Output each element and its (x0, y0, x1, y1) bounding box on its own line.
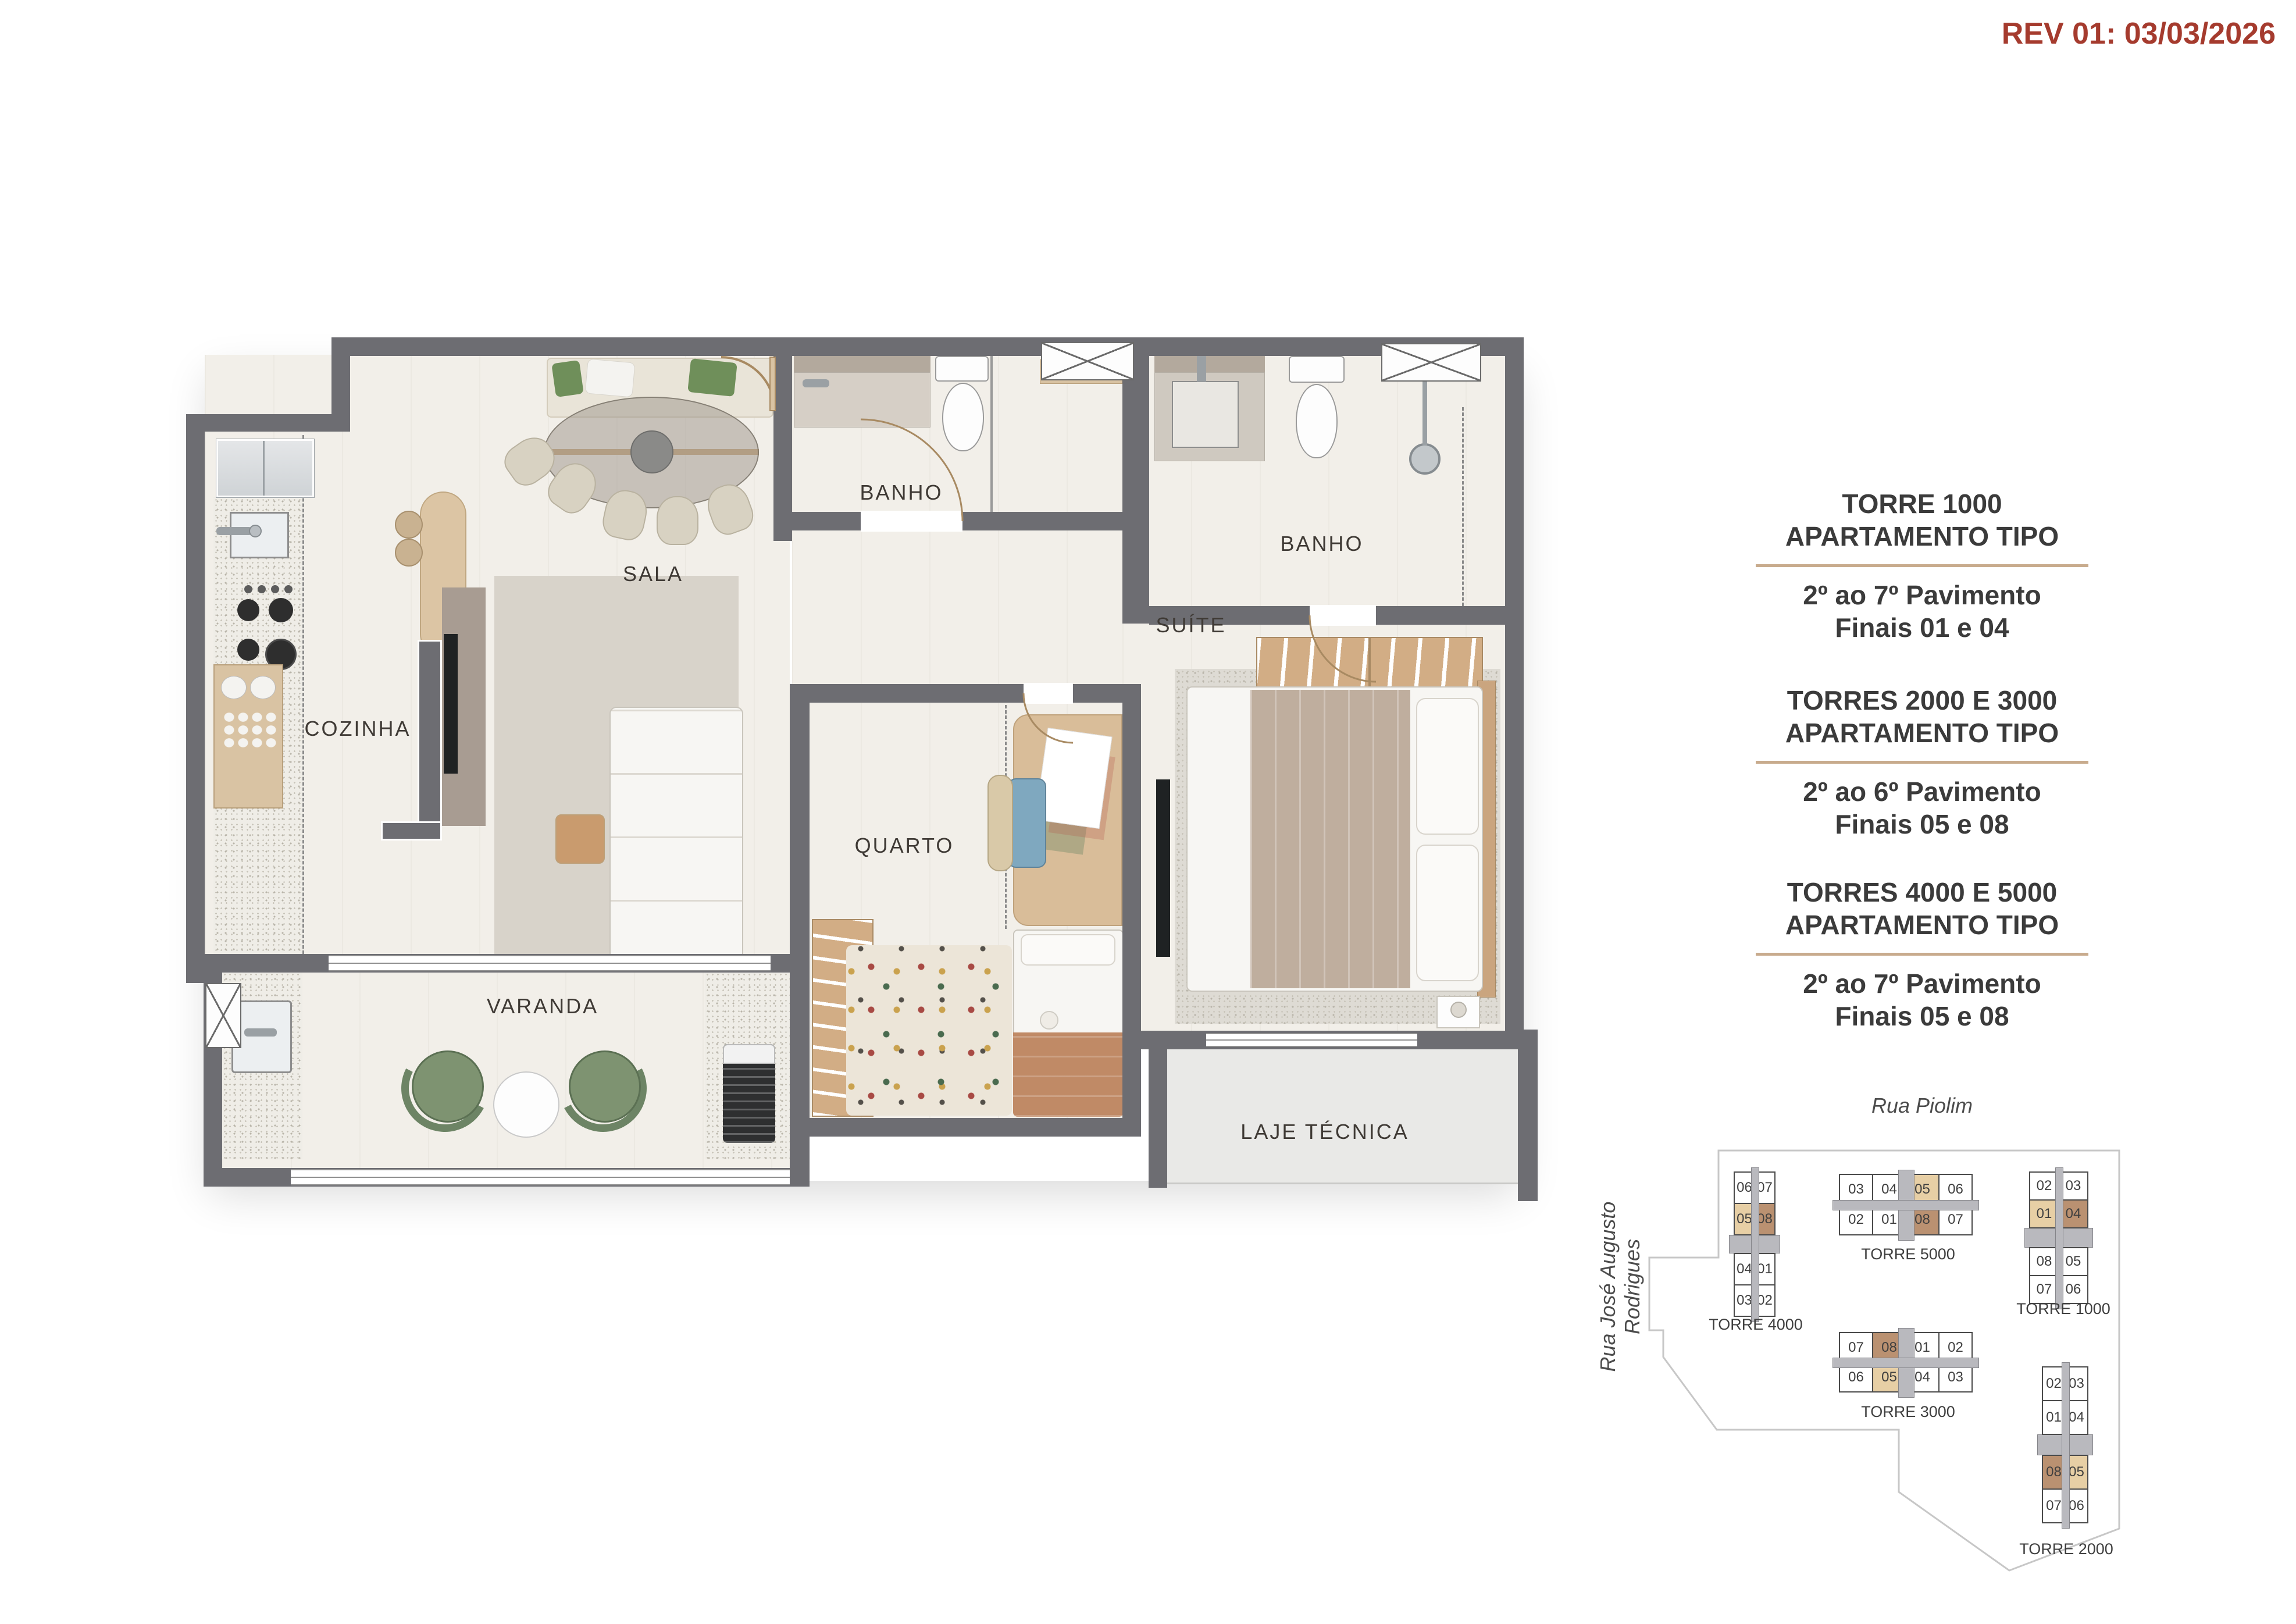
street-label-rua-jose-augusto-rodrigues: Rua José Augusto Rodrigues (1596, 1153, 1645, 1420)
tower-label-torre-5000: TORRE 5000 (1832, 1245, 1984, 1263)
tower-corridor (1832, 1358, 1979, 1368)
info-line1: 2º ao 6º Pavimento (1733, 775, 2111, 808)
fridge-door-split (263, 441, 265, 496)
bedroom-pillow (1021, 934, 1115, 966)
tower-label-torre-4000: TORRE 4000 (1680, 1316, 1831, 1334)
info-title: TORRES 2000 E 3000 (1733, 684, 2111, 717)
info-block-torres-4000-5000: TORRES 4000 E 5000 APARTAMENTO TIPO 2º a… (1733, 876, 2111, 1032)
burner-2 (269, 598, 293, 622)
bar-stool-1 (395, 511, 423, 539)
bath2-toilet-tank (1289, 356, 1345, 383)
tower-label-torre-3000: TORRE 3000 (1832, 1403, 1984, 1421)
balcony-faucet (244, 1028, 277, 1037)
info-title: TORRE 1000 (1733, 487, 2111, 520)
balcony-chair-left (412, 1050, 484, 1123)
coffee-table (555, 814, 605, 864)
balcony-shaft (205, 983, 241, 1048)
balcony-sliding-door (329, 955, 771, 971)
bedroom-desk-artwork (1035, 728, 1112, 829)
divider-line (1756, 761, 2088, 764)
balcony-table (493, 1071, 559, 1138)
bath1-toilet-bowl (942, 383, 984, 451)
floor-laje-tecnica (1167, 1049, 1518, 1184)
dining-centerpiece (630, 430, 673, 473)
wall-left (186, 414, 205, 983)
info-line2: Finais 05 e 08 (1733, 1000, 2111, 1032)
bath1-shower-partition (990, 352, 993, 512)
room-label-sala: SALA (566, 562, 740, 586)
living-divider-wall-foot (381, 821, 442, 841)
room-label-banho1: BANHO (814, 480, 989, 505)
tower-label-torre-2000: TORRE 2000 (1991, 1540, 2142, 1558)
bedroom-polka-rug (846, 945, 1012, 1116)
cabinet-dots (222, 711, 277, 749)
tower-diagram-torre-5000: 0304050602010807 (1839, 1174, 1972, 1235)
page: REV 01: 03/03/2026 (0, 0, 2296, 1624)
info-block-torres-2000-3000: TORRES 2000 E 3000 APARTAMENTO TIPO 2º a… (1733, 684, 2111, 841)
bath2-sink (1172, 381, 1239, 448)
wall-bedroom-bottom (810, 1118, 1141, 1137)
cooktop-knob-3 (271, 585, 279, 593)
cabinet-basin-2 (250, 676, 276, 699)
suite-pillow-2 (1416, 845, 1479, 981)
divider-line (1756, 953, 2088, 956)
bath2-faucet (1197, 356, 1206, 382)
tower-corridor (1832, 1200, 1979, 1210)
info-subtitle: APARTAMENTO TIPO (1733, 717, 2111, 749)
sofa-pillow-green-right (687, 358, 737, 397)
room-label-cozinha: COZINHA (270, 717, 445, 741)
revision-text: REV 01: 03/03/2026 (1752, 16, 2276, 51)
bedroom-blanket (1013, 1032, 1124, 1117)
bath2-shower-boundary-dashed (1462, 407, 1464, 606)
room-label-suite: SUÍTE (1104, 613, 1278, 638)
bedroom-teddy (1040, 1011, 1058, 1030)
bedroom-chair-blue (1008, 778, 1046, 868)
tower-core (1751, 1167, 1759, 1322)
bath2-vent-shaft (1381, 343, 1481, 382)
balcony-chair-right (569, 1050, 641, 1123)
living-tv (444, 634, 458, 774)
wall-laje-right (1518, 1030, 1538, 1201)
info-subtitle: APARTAMENTO TIPO (1733, 909, 2111, 941)
room-label-quarto: QUARTO (817, 834, 992, 858)
street-label-rua-piolim: Rua Piolim (1835, 1094, 2009, 1118)
suite-door-gap (1310, 605, 1376, 626)
info-line2: Finais 01 e 04 (1733, 611, 2111, 644)
tower-core (2055, 1167, 2063, 1309)
suite-blanket (1250, 690, 1410, 988)
sofa-pillow-white (585, 359, 636, 398)
info-line2: Finais 05 e 08 (1733, 808, 2111, 841)
tower-label-torre-1000: TORRE 1000 (1988, 1300, 2139, 1318)
kitchen-counter-edge-dashed (302, 435, 304, 954)
cabinet-basin-1 (221, 676, 247, 699)
info-block-torre-1000: TORRE 1000 APARTAMENTO TIPO 2º ao 7º Pav… (1733, 487, 2111, 644)
wall-bedroom-left (790, 684, 810, 1187)
bath2-toilet-bowl (1296, 384, 1338, 458)
suite-lamp (1450, 1002, 1467, 1018)
info-line1: 2º ao 7º Pavimento (1733, 579, 2111, 611)
dining-chair-3 (657, 496, 698, 545)
wall-right (1505, 337, 1524, 1047)
info-subtitle: APARTAMENTO TIPO (1733, 520, 2111, 553)
tower-diagram-torre-4000: 0607050804010302 (1734, 1172, 1775, 1316)
sofa-pillow-green-left (551, 360, 584, 397)
suite-window (1206, 1033, 1417, 1047)
balcony-rail-glass (291, 1169, 790, 1185)
info-line1: 2º ao 7º Pavimento (1733, 967, 2111, 1000)
bath1-door-gap (861, 511, 962, 532)
cooktop-knob-4 (284, 585, 293, 593)
tower-diagram-torre-2000: 0203010408050706 (2042, 1367, 2088, 1523)
bath1-faucet (803, 379, 829, 387)
room-label-varanda: VARANDA (455, 994, 630, 1018)
divider-line (1756, 564, 2088, 567)
room-label-banho2: BANHO (1235, 532, 1409, 556)
wall-kitchen-top (186, 414, 350, 432)
bath2-shower-head (1409, 443, 1441, 475)
suite-tv (1156, 779, 1170, 957)
wall-living-bath1 (773, 337, 792, 541)
wall-laje-left (1149, 1049, 1167, 1188)
bedroom-door-gap (1024, 683, 1073, 704)
bath1-toilet-tank (935, 356, 989, 382)
tower-diagram-torre-1000: 0203010408050706 (2030, 1172, 2088, 1304)
kitchen-drain (249, 525, 262, 537)
room-label-laje-tecnica: LAJE TÉCNICA (1208, 1120, 1441, 1144)
kitchen-faucet (216, 527, 252, 535)
wall-bedroom-suite-divider (1122, 684, 1141, 1137)
tower-core (2062, 1362, 2070, 1529)
fridge (216, 439, 314, 497)
chaise-sofa (609, 707, 743, 964)
balcony-grill-top (723, 1044, 775, 1064)
bath1-vent-shaft (1041, 342, 1134, 380)
bar-stool-2 (395, 539, 423, 567)
info-title: TORRES 4000 E 5000 (1733, 876, 2111, 909)
burner-3 (237, 639, 259, 661)
burner-1 (237, 599, 259, 621)
suite-pillow-1 (1416, 698, 1479, 835)
cooktop-knob-2 (258, 585, 266, 593)
wall-top (331, 337, 1524, 356)
tower-diagram-torre-3000: 0708010206050403 (1839, 1333, 1972, 1392)
cooktop-knob-1 (244, 585, 252, 593)
